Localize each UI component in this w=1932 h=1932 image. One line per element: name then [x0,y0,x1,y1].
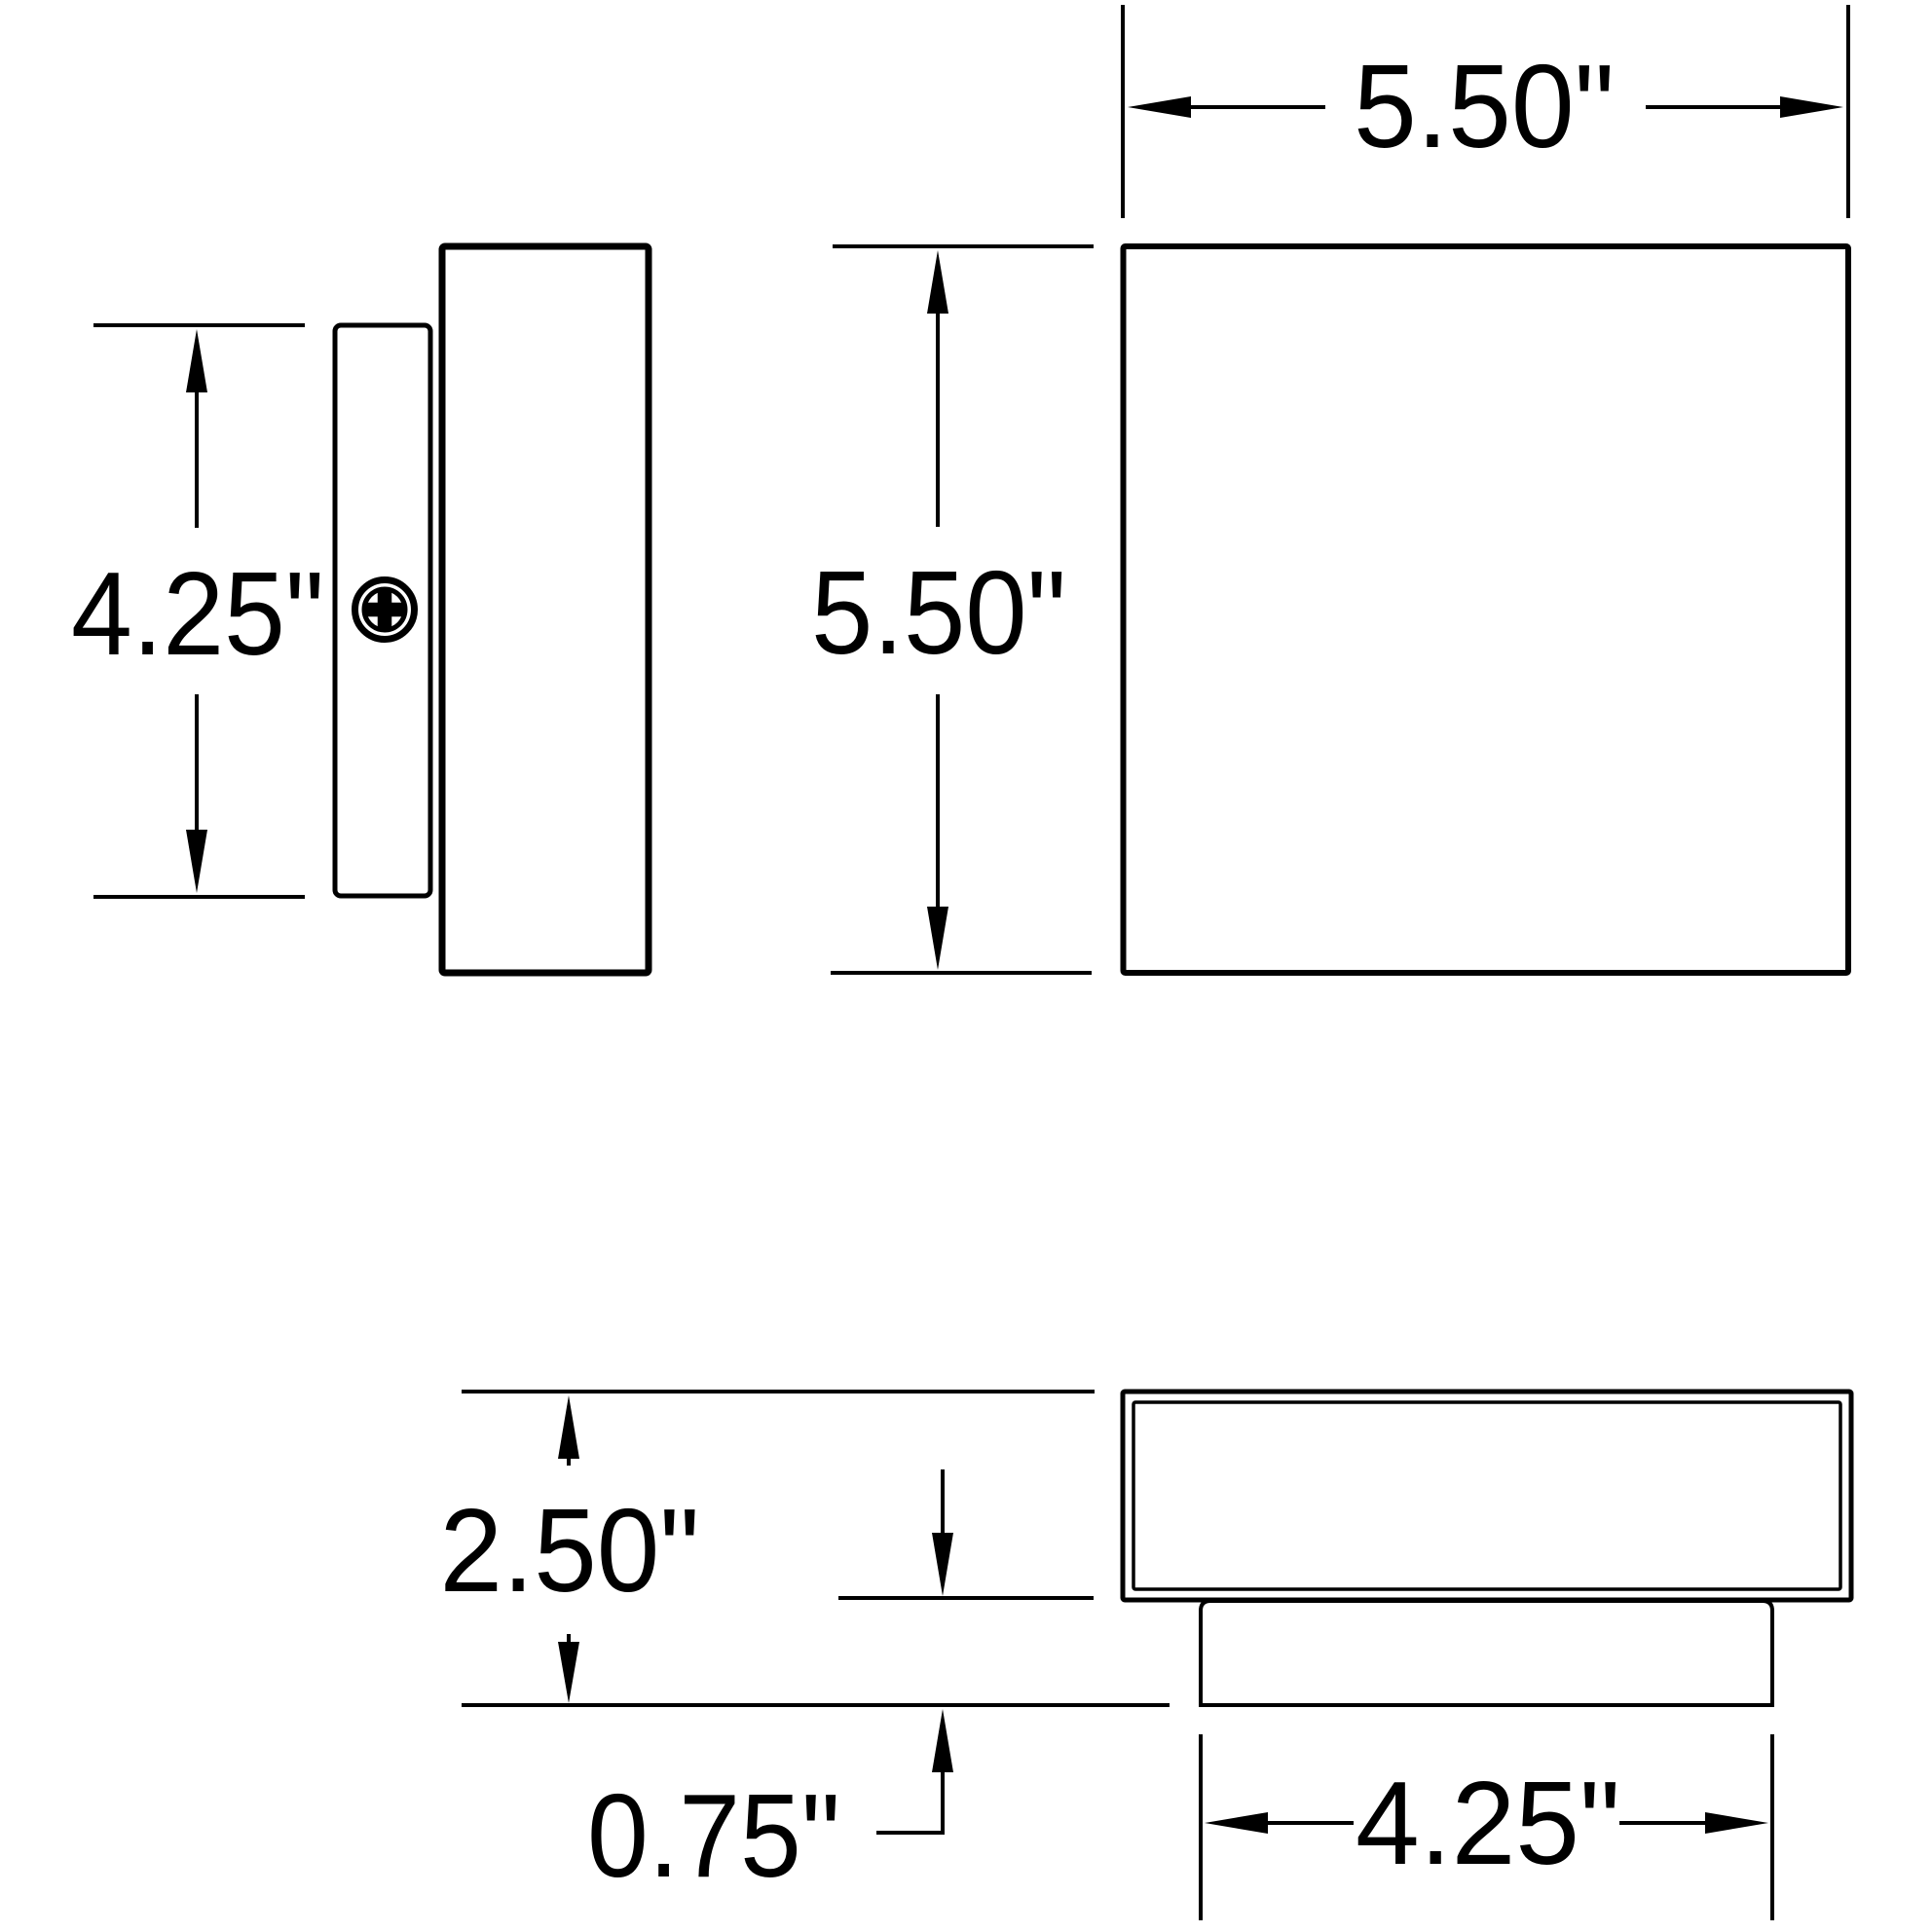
svg-text:4.25": 4.25" [1356,1757,1620,1889]
svg-text:2.50": 2.50" [440,1484,700,1616]
svg-text:4.25": 4.25" [71,547,324,680]
svg-text:5.50": 5.50" [1354,40,1615,172]
svg-text:5.50": 5.50" [811,546,1066,679]
svg-text:0.75": 0.75" [587,1769,840,1902]
